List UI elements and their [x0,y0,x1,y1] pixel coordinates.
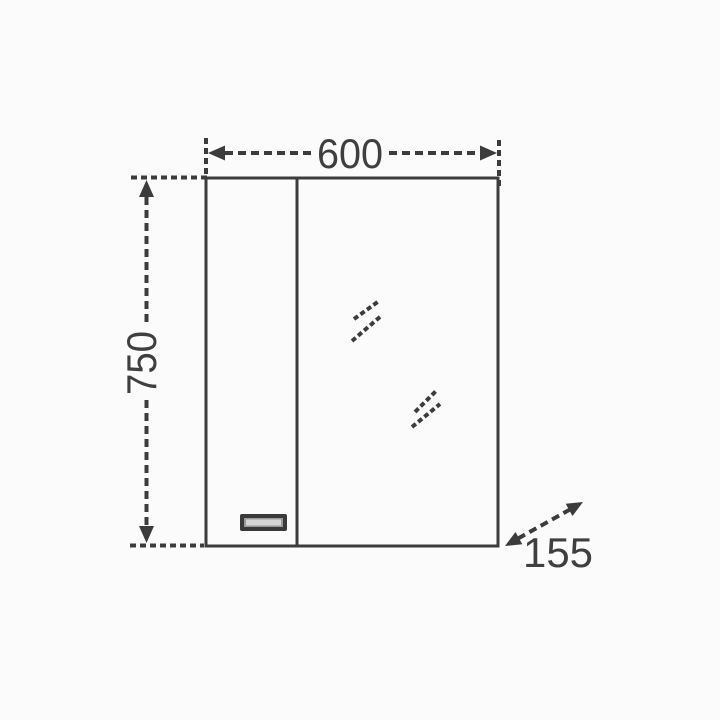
arrow-down-icon [139,526,154,543]
depth-dimension: 155 [505,502,593,576]
cabinet-dimension-diagram: 600 750 155 [0,0,720,720]
shine-mark [412,404,440,427]
cabinet-outline [206,178,498,546]
mirror-shine-marks [352,301,440,427]
arrow-right-icon [480,146,497,161]
door-handle-highlight [246,520,281,526]
arrow-left-icon [208,146,225,161]
depth-dimension-label: 155 [523,529,593,576]
height-dimension-label: 750 [118,331,165,395]
cabinet [206,178,498,546]
door-handle [240,514,287,531]
arrow-up-icon [139,180,154,197]
height-dimension: 750 [118,178,210,546]
drawing-canvas: 600 750 155 [0,0,720,720]
width-dimension-label: 600 [317,130,383,177]
shine-mark [354,301,379,319]
